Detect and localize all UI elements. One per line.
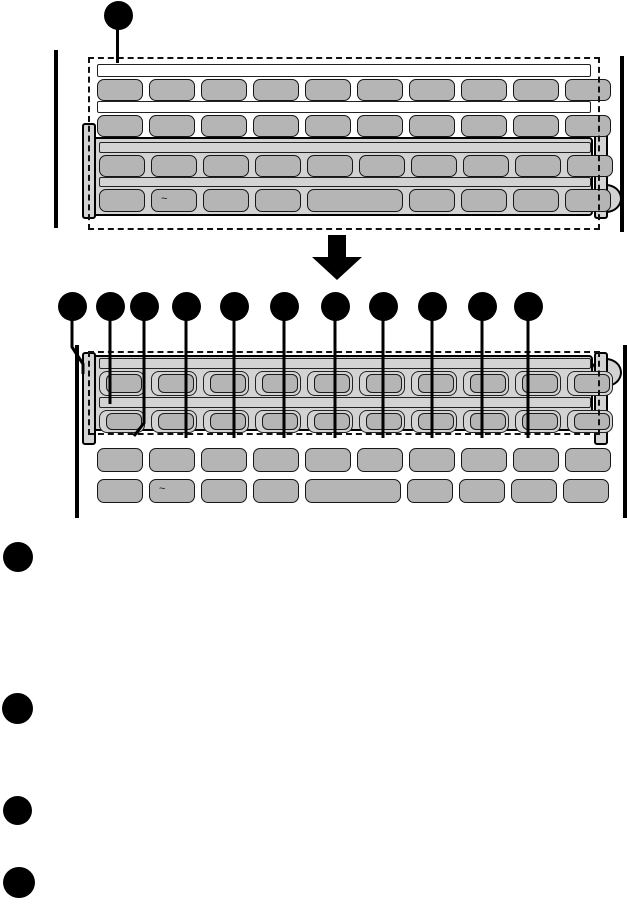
callout-dot	[418, 292, 447, 321]
callout-dot	[104, 1, 133, 30]
callout-dot	[369, 292, 398, 321]
callout-dot	[270, 292, 299, 321]
callout-dot	[172, 292, 201, 321]
callout-leader-lines	[0, 0, 627, 910]
callout-dot	[468, 292, 497, 321]
manual-figure-page: ~ ~	[0, 0, 627, 910]
callout-dot	[96, 292, 125, 321]
callout-dot	[220, 292, 249, 321]
callout-dot	[130, 292, 159, 321]
callout-dot	[58, 292, 87, 321]
callout-dot	[321, 292, 350, 321]
callout-dot	[514, 292, 543, 321]
